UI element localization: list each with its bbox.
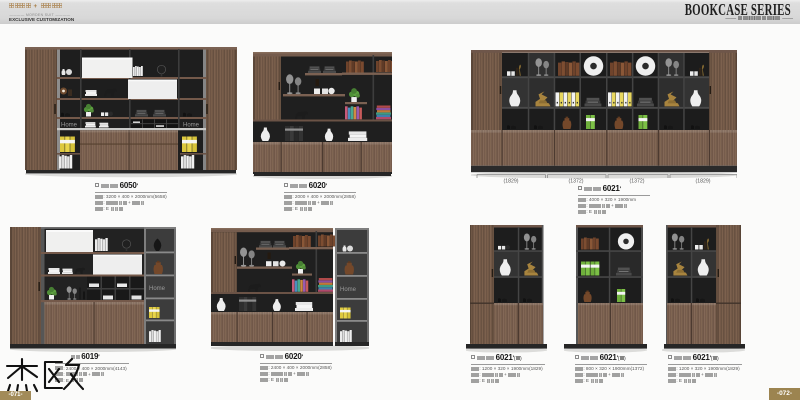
svg-text:(1372): (1372): [569, 179, 584, 185]
svg-text:(1372): (1372): [630, 179, 645, 185]
svg-text:(1829): (1829): [696, 179, 711, 185]
svg-text:(1829): (1829): [504, 179, 519, 185]
